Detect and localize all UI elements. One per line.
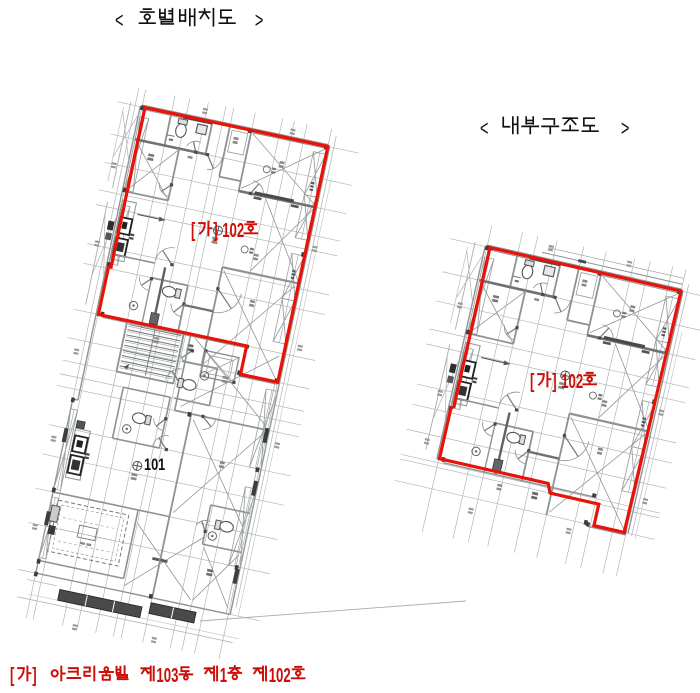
- svg-text:[: [: [191, 219, 196, 241]
- svg-text:102: 102: [561, 370, 583, 392]
- svg-text:>: >: [621, 115, 629, 140]
- svg-text:1: 1: [220, 664, 227, 686]
- svg-text:102: 102: [222, 219, 244, 241]
- svg-text:]: ]: [213, 219, 217, 241]
- svg-text:]: ]: [32, 664, 36, 686]
- svg-text:101: 101: [144, 455, 165, 474]
- svg-text:<: <: [480, 115, 488, 140]
- svg-text:[: [: [530, 370, 535, 392]
- svg-text:<: <: [115, 7, 123, 32]
- svg-text:103: 103: [156, 664, 178, 686]
- svg-text:[: [: [10, 664, 15, 686]
- svg-text:]: ]: [552, 370, 556, 392]
- svg-text:>: >: [255, 7, 263, 32]
- svg-text:102: 102: [269, 664, 291, 686]
